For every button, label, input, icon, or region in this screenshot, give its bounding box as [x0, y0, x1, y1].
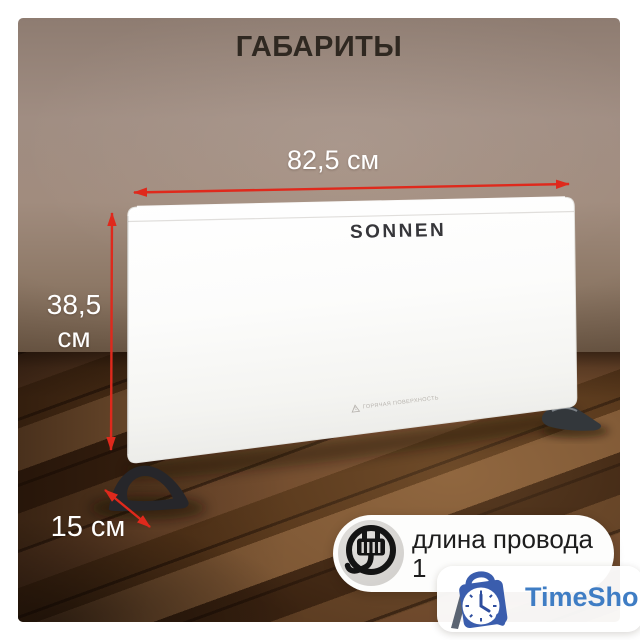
shop-watermark: TimeShop — [437, 566, 640, 632]
cable-length-line1: длина провода — [412, 525, 593, 554]
height-value: 38,5 — [24, 288, 124, 321]
warning-triangle-icon — [351, 404, 361, 413]
height-dimension-label: 38,5 см — [24, 288, 124, 354]
power-plug-icon — [338, 520, 404, 586]
watermark-text: TimeShop — [525, 582, 640, 613]
width-dimension-label: 82,5 см — [233, 145, 433, 176]
brand-logo: SONNEN — [350, 220, 440, 244]
depth-dimension-label: 15 см — [30, 511, 146, 544]
product-dimension-image: ГАБАРИТЫ 82,5 см 38,5 см 15 см SONNEN ГО… — [0, 0, 640, 640]
timeshop-bag-clock-icon — [437, 566, 523, 630]
height-unit: см — [24, 321, 124, 354]
page-title: ГАБАРИТЫ — [18, 31, 620, 64]
